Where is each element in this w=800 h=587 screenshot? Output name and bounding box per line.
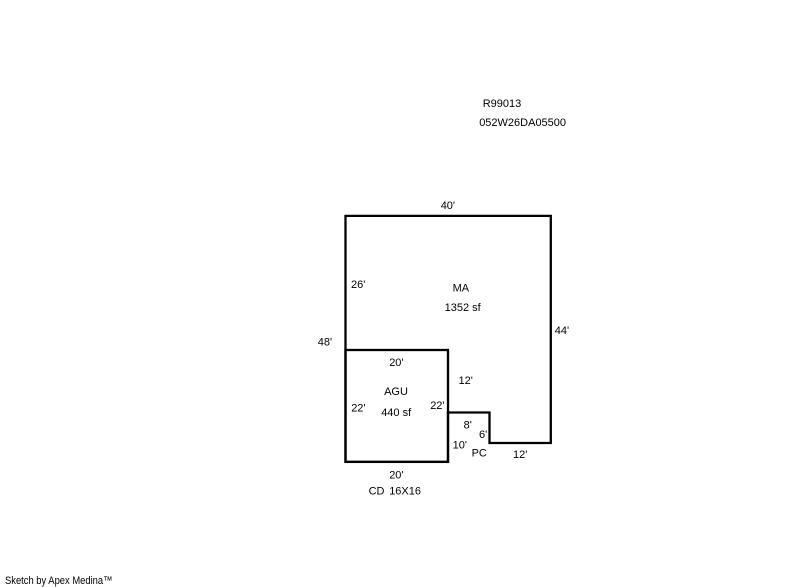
svg-text:44': 44' (555, 325, 569, 337)
svg-text:48': 48' (318, 337, 332, 349)
svg-text:6': 6' (479, 429, 487, 441)
svg-text:20': 20' (389, 357, 403, 369)
svg-text:MA: MA (453, 283, 470, 295)
svg-text:22': 22' (351, 402, 365, 414)
svg-text:AGU: AGU (384, 386, 408, 398)
svg-text:10': 10' (453, 439, 467, 451)
svg-text:1352 sf: 1352 sf (445, 302, 482, 314)
svg-text:16X16: 16X16 (389, 485, 421, 497)
svg-text:PC: PC (472, 447, 487, 459)
svg-text:12': 12' (513, 449, 527, 461)
svg-text:CD: CD (369, 485, 385, 497)
svg-text:052W26DA05500: 052W26DA05500 (479, 117, 566, 129)
svg-text:26': 26' (351, 279, 365, 291)
svg-text:440 sf: 440 sf (381, 407, 412, 419)
svg-text:Sketch by Apex Medina™: Sketch by Apex Medina™ (5, 575, 113, 587)
svg-text:12': 12' (459, 375, 473, 387)
svg-text:R99013: R99013 (483, 98, 522, 110)
svg-text:20': 20' (389, 470, 403, 482)
svg-text:8': 8' (464, 419, 472, 431)
svg-text:40': 40' (441, 200, 455, 212)
svg-text:22': 22' (430, 400, 444, 412)
